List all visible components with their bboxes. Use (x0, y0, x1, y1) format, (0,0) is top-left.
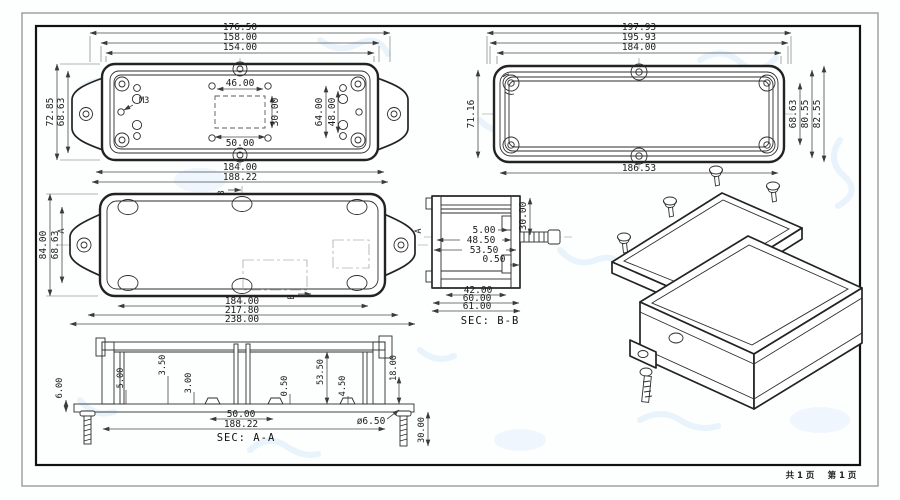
dim-label-m3: M3 (139, 96, 149, 106)
lid-screw (618, 233, 631, 253)
dim-label: 71.16 (466, 99, 477, 128)
mounting-screw-right (396, 411, 411, 446)
dim-label-diameter: ø6.50 (357, 416, 386, 427)
dim-label: 30.00 (270, 97, 281, 126)
dim-label: 186.53 (622, 163, 656, 174)
dim-label: 80.55 (800, 100, 811, 129)
dim-label: 68.63 (788, 100, 799, 129)
dim-label: 154.00 (223, 42, 258, 53)
exploded-isometric-view (612, 166, 862, 409)
dim-label: 3.50 (158, 355, 168, 376)
section-b-marker: B (287, 294, 297, 299)
dim-label: 84.00 (38, 230, 49, 259)
dim-label: 50.00 (226, 138, 255, 149)
dim-label: 188.22 (224, 419, 258, 430)
dim-label: 188.22 (223, 172, 257, 183)
dim-label: 82.55 (812, 100, 823, 129)
dim-label: 68.63 (50, 231, 61, 260)
bottom-outside-view: A A B B 84.00 68.63 184.00 217.80 238.00 (38, 186, 428, 325)
footer-total-pages: 共 1 页 (786, 470, 815, 481)
section-b-marker: B (217, 190, 227, 195)
lid-screw (664, 197, 677, 217)
section-bb-title: SEC: B-B (461, 315, 520, 327)
section-aa-title: SEC: A-A (217, 432, 276, 444)
dim-label: 30.00 (518, 201, 529, 230)
sheet-footer: 共 1 页 第 1 页 (786, 470, 857, 481)
section-bb-view: 30.00 5.00 48.50 53.50 0.50 42.00 60.00 … (424, 196, 572, 327)
drawing-sheet: M3 176.50 158.00 154.00 46.00 30.00 50.0… (0, 0, 900, 500)
dim-label: 0.50 (483, 254, 506, 265)
lid-screw (710, 166, 723, 186)
dim-label: 68.63 (56, 98, 67, 127)
mounting-screw-left (80, 411, 95, 444)
dim-label: 184.00 (622, 42, 657, 53)
dim-label: 3.00 (184, 373, 194, 394)
dim-label: 238.00 (225, 314, 260, 325)
cad-drawing-canvas: M3 176.50 158.00 154.00 46.00 30.00 50.0… (0, 0, 900, 500)
dim-label: 18.00 (389, 355, 399, 381)
dim-label: 30.00 (417, 417, 427, 443)
lid-screw (767, 182, 780, 202)
base-screw (640, 368, 652, 402)
dim-label: 64.00 (314, 97, 325, 126)
dim-label: 53.50 (316, 359, 326, 385)
section-a-marker: A (414, 228, 424, 234)
dim-label: 5.00 (116, 368, 126, 389)
dim-label: 48.00 (327, 97, 338, 126)
footer-page-number: 第 1 页 (828, 470, 857, 481)
dim-label: 0.50 (280, 376, 290, 397)
dim-label: 46.00 (226, 78, 255, 89)
section-aa-view: 6.00 5.00 3.50 3.00 0.50 53.50 4.50 18.0… (55, 336, 428, 446)
dim-label: 4.50 (338, 376, 348, 397)
lid-inside-view: 197.93 195.93 184.00 71.16 68.63 80.55 8… (466, 22, 824, 174)
dim-label: 6.00 (55, 378, 65, 399)
dim-label: 61.00 (463, 301, 492, 312)
dim-label: 72.85 (45, 98, 56, 127)
